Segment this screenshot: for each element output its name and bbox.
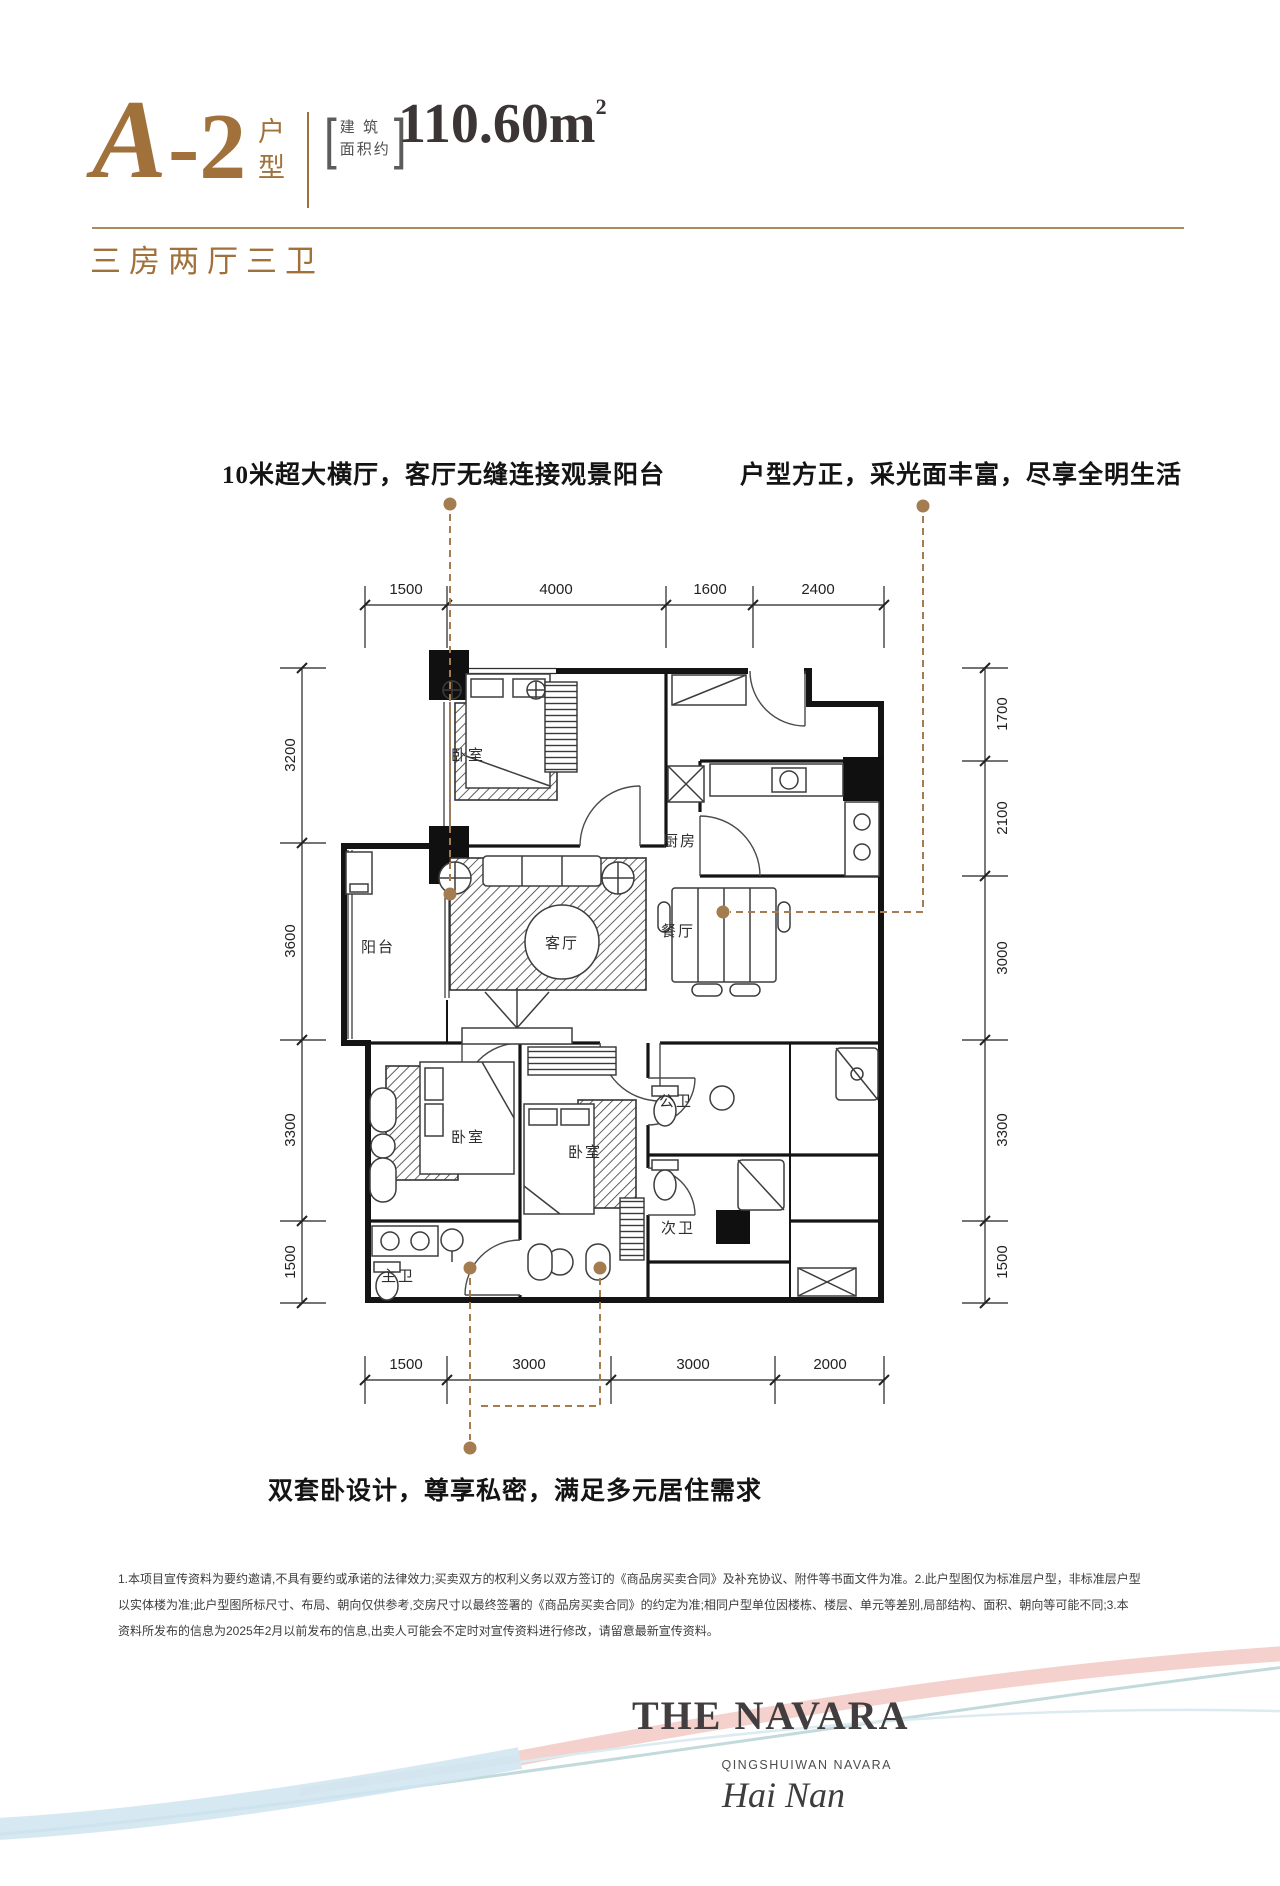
dim-top-1: 1500 <box>389 581 422 598</box>
plan-code-letter: A <box>92 84 167 196</box>
area-superscript: 2 <box>596 94 607 119</box>
sofa <box>483 856 601 886</box>
dimension-right: 1700 2100 3000 3300 1500 <box>962 663 1011 1308</box>
dim-bottom-4: 2000 <box>813 1356 846 1373</box>
brand-name: THE NAVARA <box>632 1694 909 1738</box>
room-label-dining: 餐厅 <box>661 923 695 940</box>
room-label-balcony: 阳台 <box>361 939 395 956</box>
dimension-bottom: 1500 3000 3000 2000 <box>360 1356 889 1404</box>
floor-plan: 1500 4000 1600 2400 1500 3000 3000 2000 … <box>280 480 1020 1470</box>
dim-bottom-1: 1500 <box>389 1356 422 1373</box>
area-prefix: [ 建 筑 面积约 ] <box>324 116 407 162</box>
floorplan-brochure-page: A -2 户 型 [ 建 筑 面积约 ] 110.60m2 三房两厅三卫 10米… <box>0 0 1280 1886</box>
footer-swoosh-decoration <box>0 1610 1280 1886</box>
shaft-box <box>672 675 746 705</box>
bracket-left: [ <box>324 111 337 166</box>
brand-subtitle: QINGSHUIWAN NAVARA <box>630 1758 892 1773</box>
kitchen-counter <box>710 764 843 796</box>
dim-top-3: 1600 <box>693 581 726 598</box>
dim-left-1: 3200 <box>282 738 299 771</box>
room-label-kitchen: 厨房 <box>663 833 697 850</box>
room-label-bedroom-right: 卧室 <box>568 1144 602 1161</box>
dim-right-1: 1700 <box>994 697 1011 730</box>
header-rule <box>92 227 1184 229</box>
dim-bottom-2: 3000 <box>512 1356 545 1373</box>
room-label-bath-secondary: 次卫 <box>661 1220 695 1237</box>
plan-code-label-top: 户 <box>258 114 285 150</box>
dim-left-2: 3600 <box>282 924 299 957</box>
sink-icon <box>710 1086 734 1110</box>
room-label-living: 客厅 <box>545 935 579 952</box>
dimension-top: 1500 4000 1600 2400 <box>360 581 889 648</box>
dimension-left: 3200 3600 3300 1500 <box>280 663 326 1308</box>
furniture <box>346 674 879 1300</box>
room-label-bedroom-top: 卧室 <box>451 747 485 764</box>
dim-right-2: 2100 <box>994 801 1011 834</box>
room-label-bath-master: 主卫 <box>381 1268 415 1285</box>
layout-subtitle: 三房两厅三卫 <box>90 243 324 280</box>
area-prefix-line1: 建 筑 <box>340 117 391 140</box>
area-value: 110.60m2 <box>398 96 607 152</box>
tv-bench <box>462 1028 572 1044</box>
plan-code-suffix: -2 <box>168 100 246 194</box>
dim-right-4: 3300 <box>994 1113 1011 1146</box>
stove-icon <box>845 802 879 876</box>
area-prefix-line2: 面积约 <box>340 139 391 162</box>
dim-left-3: 3300 <box>282 1113 299 1146</box>
elevator-icon <box>798 1268 856 1296</box>
room-label-bath-public: 公卫 <box>659 1093 693 1110</box>
dim-top-4: 2400 <box>801 581 834 598</box>
wardrobe-icon <box>545 682 577 772</box>
disclaimer-line-1: 1.本项目宣传资料为要约邀请,不具有要约或承诺的法律效力;买卖双方的权利义务以双… <box>118 1566 1174 1592</box>
dim-right-3: 3000 <box>994 941 1011 974</box>
dim-top-2: 4000 <box>539 581 572 598</box>
plan-code-label: 户 型 <box>258 114 285 187</box>
brand-location: Hai Nan <box>722 1776 845 1816</box>
dim-left-4: 1500 <box>282 1245 299 1278</box>
dim-right-5: 1500 <box>994 1245 1011 1278</box>
dim-bottom-3: 3000 <box>676 1356 709 1373</box>
plan-code-label-bottom: 型 <box>258 150 285 186</box>
header-divider <box>307 112 309 208</box>
annotation-double-suite: 双套卧设计，尊享私密，满足多元居住需求 <box>268 1476 762 1509</box>
room-label-bedroom-left: 卧室 <box>451 1129 485 1146</box>
vanity-counter <box>372 1226 438 1256</box>
